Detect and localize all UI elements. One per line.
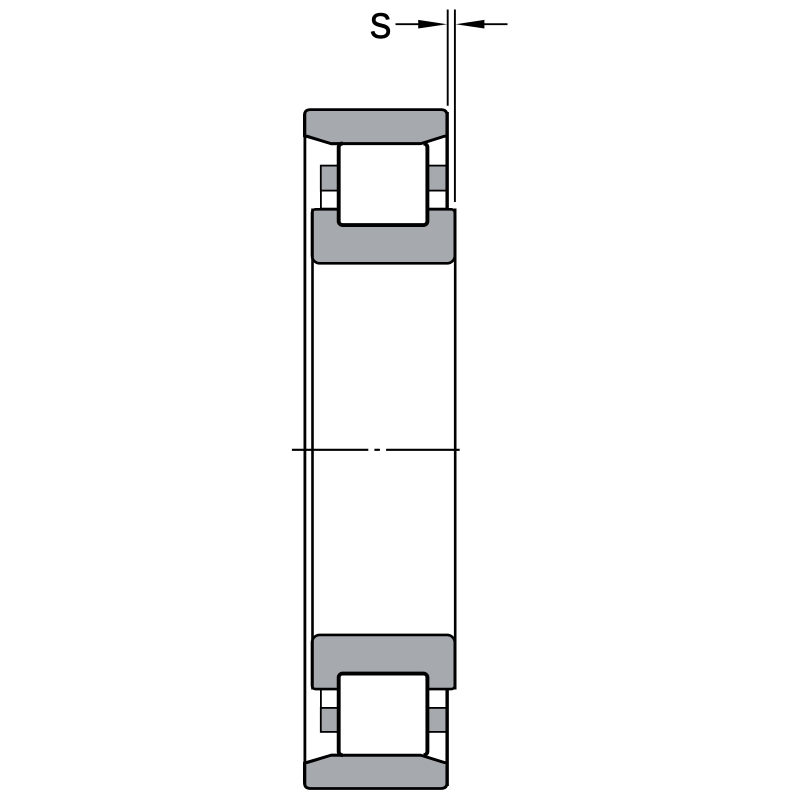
svg-text:S: S (370, 8, 391, 47)
